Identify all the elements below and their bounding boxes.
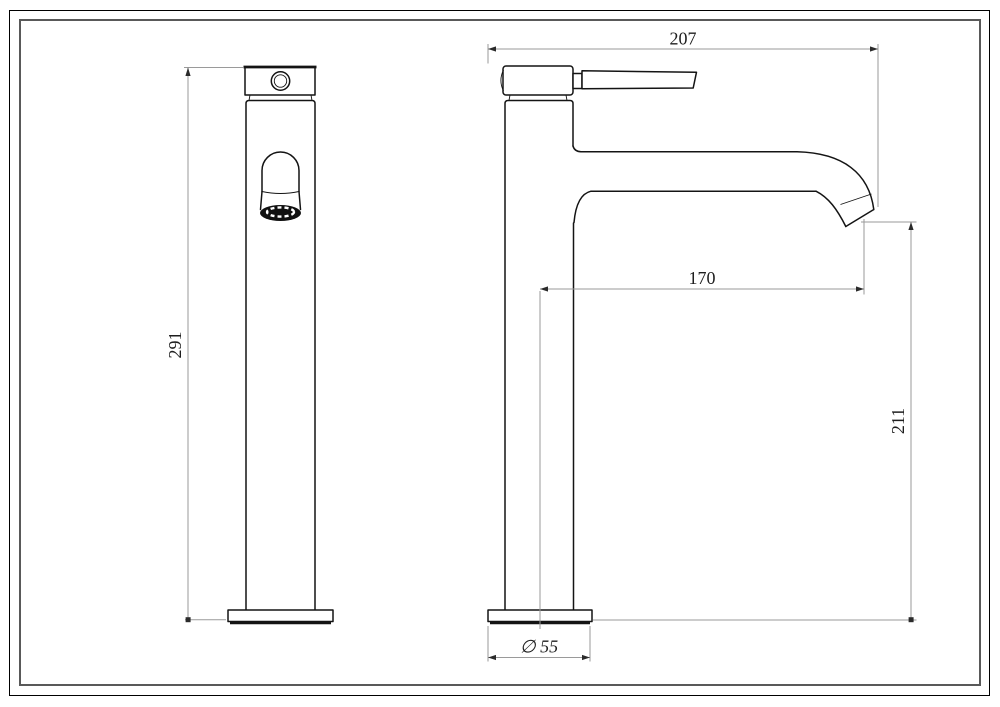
side-neck: [509, 95, 567, 101]
front-column: [246, 101, 315, 611]
spout-inner-bend: [816, 191, 846, 226]
spout-outlet-rim-line: [841, 194, 872, 205]
front-base-flange: [228, 610, 333, 622]
dim-211-tick-bottom: [909, 617, 914, 622]
dim-291-arrow-top: [185, 68, 190, 77]
side-view: 207 170 211: [488, 29, 917, 662]
dim-170-arrow-left: [540, 286, 548, 291]
dim-291-label: 291: [165, 332, 185, 359]
technical-drawing-svg: 291: [0, 0, 1000, 707]
dim-base-diameter: ∅ 55: [488, 626, 590, 662]
spout-top-line: [573, 146, 797, 152]
dim-207-arrow-right: [870, 46, 878, 51]
faucet-front-body: [228, 67, 333, 623]
dim-outlet-height: 211: [593, 222, 917, 622]
side-spout: [573, 146, 874, 227]
dim-front-height: 291: [165, 68, 243, 623]
front-neck: [249, 95, 312, 101]
spout-outlet-face: [846, 210, 874, 227]
front-view: 291: [165, 67, 333, 623]
dim-207-arrow-left: [488, 46, 496, 51]
dim-170-arrow-right: [856, 286, 864, 291]
spout-outer-bend: [797, 152, 874, 210]
dim-55-arrow-left: [488, 655, 496, 660]
side-lever-joint: [573, 74, 582, 89]
dim-291-tick-bottom: [186, 617, 191, 622]
faucet-side-body: [488, 66, 874, 623]
side-handle-cap: [503, 66, 573, 95]
dim-207-label: 207: [670, 29, 697, 49]
dim-211-label: 211: [888, 408, 908, 434]
dim-55-label: ∅ 55: [520, 637, 558, 657]
dim-170-label: 170: [689, 268, 716, 288]
dim-211-arrow-top: [908, 222, 913, 230]
dim-spout-reach: 170: [540, 219, 864, 629]
dim-overall-depth: 207: [488, 29, 878, 208]
spout-root-fillet: [574, 191, 591, 222]
side-column-left-top: [505, 101, 573, 611]
dim-55-arrow-right: [582, 655, 590, 660]
drawing-sheet: 291: [0, 0, 1000, 707]
side-lever-bar: [582, 71, 697, 89]
